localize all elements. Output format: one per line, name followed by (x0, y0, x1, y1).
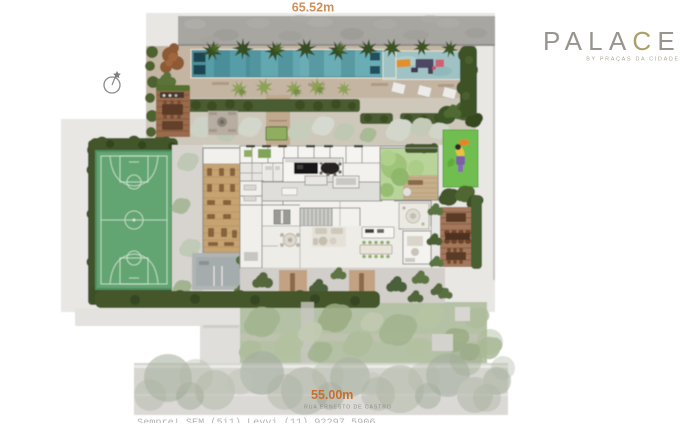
svg-text:65.52m: 65.52m (292, 1, 334, 15)
svg-text:BY PRAÇAS DA CIDADE: BY PRAÇAS DA CIDADE (586, 57, 680, 63)
svg-text:PALACE: PALACE (543, 26, 681, 56)
svg-text:RUA ERNESTO DE CASTRO: RUA ERNESTO DE CASTRO (304, 405, 392, 411)
svg-text:55.00m: 55.00m (311, 388, 353, 402)
